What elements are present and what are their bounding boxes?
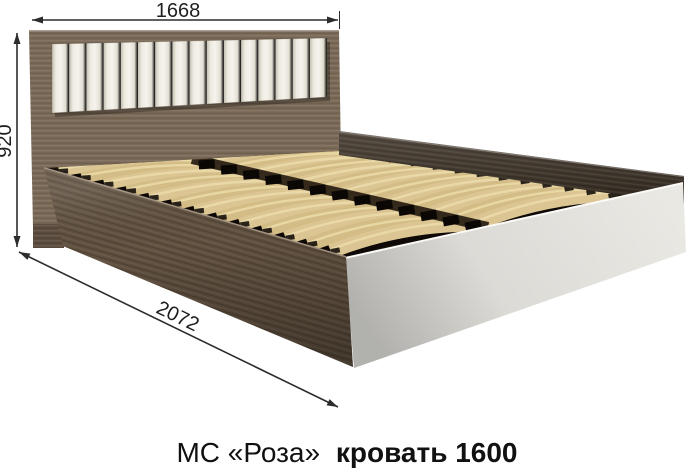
dimension-length-label: 2072	[153, 297, 203, 336]
arrow-up-icon	[14, 33, 21, 44]
dimension-height: 920	[0, 33, 21, 247]
dimension-width-label: 1668	[156, 0, 201, 22]
caption-series: МС «Роза»	[176, 437, 320, 468]
dimension-width: 1668	[32, 0, 340, 29]
bed-dimension-diagram: 1668 920 2072 МС «Роза» кровать 1600	[0, 0, 700, 473]
bed-illustration-canvas: 1668 920 2072 МС «Роза» кровать 1600	[0, 0, 700, 473]
arrow-down-icon	[14, 236, 21, 247]
dimension-height-label: 920	[0, 124, 16, 157]
arrow-right-icon	[327, 17, 338, 24]
arrow-left-icon	[32, 17, 43, 24]
arrow-upleft-icon	[19, 252, 30, 260]
caption-product: кровать 1600	[336, 437, 518, 468]
caption: МС «Роза» кровать 1600	[176, 437, 517, 468]
bed-illustration	[29, 30, 686, 368]
arrow-downright-icon	[327, 399, 338, 407]
